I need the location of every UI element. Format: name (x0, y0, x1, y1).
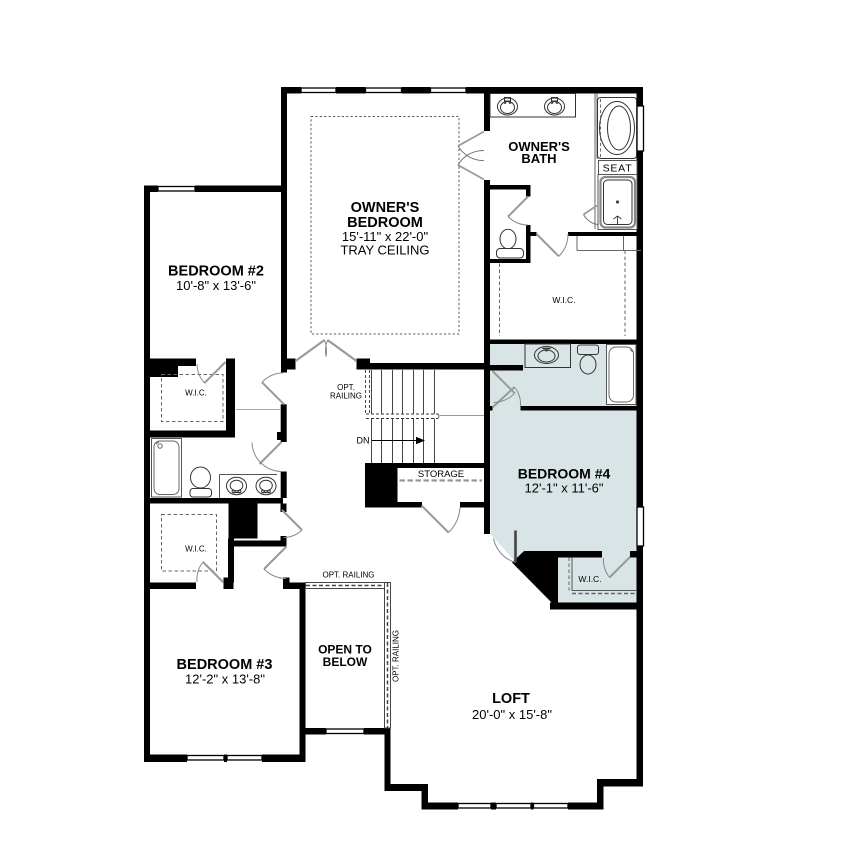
svg-text:SEAT: SEAT (603, 163, 633, 175)
svg-text:OPT. RAILING: OPT. RAILING (322, 571, 374, 580)
svg-text:12'-1" x 11'-6": 12'-1" x 11'-6" (525, 481, 604, 496)
svg-text:W.I.C.: W.I.C. (185, 389, 207, 398)
svg-text:W.I.C.: W.I.C. (552, 295, 575, 305)
svg-text:W.I.C.: W.I.C. (185, 545, 207, 554)
svg-text:20'-0" x 15'-8": 20'-0" x 15'-8" (472, 707, 552, 722)
svg-text:12'-2" x 13'-8": 12'-2" x 13'-8" (185, 672, 265, 687)
svg-text:STORAGE: STORAGE (418, 469, 464, 480)
svg-text:OWNER'S: OWNER'S (351, 200, 420, 216)
svg-text:OPT. RAILING: OPT. RAILING (392, 630, 401, 682)
svg-text:TRAY CEILING: TRAY CEILING (340, 243, 429, 258)
svg-text:BEDROOM #4: BEDROOM #4 (518, 466, 611, 482)
svg-text:BELOW: BELOW (323, 655, 368, 669)
svg-text:10'-8" x 13'-6": 10'-8" x 13'-6" (176, 278, 256, 293)
svg-text:W.I.C.: W.I.C. (578, 574, 601, 584)
svg-text:RAILING: RAILING (330, 392, 362, 401)
svg-text:DN: DN (357, 436, 370, 446)
svg-text:BATH: BATH (521, 151, 556, 166)
svg-text:LOFT: LOFT (492, 691, 530, 707)
